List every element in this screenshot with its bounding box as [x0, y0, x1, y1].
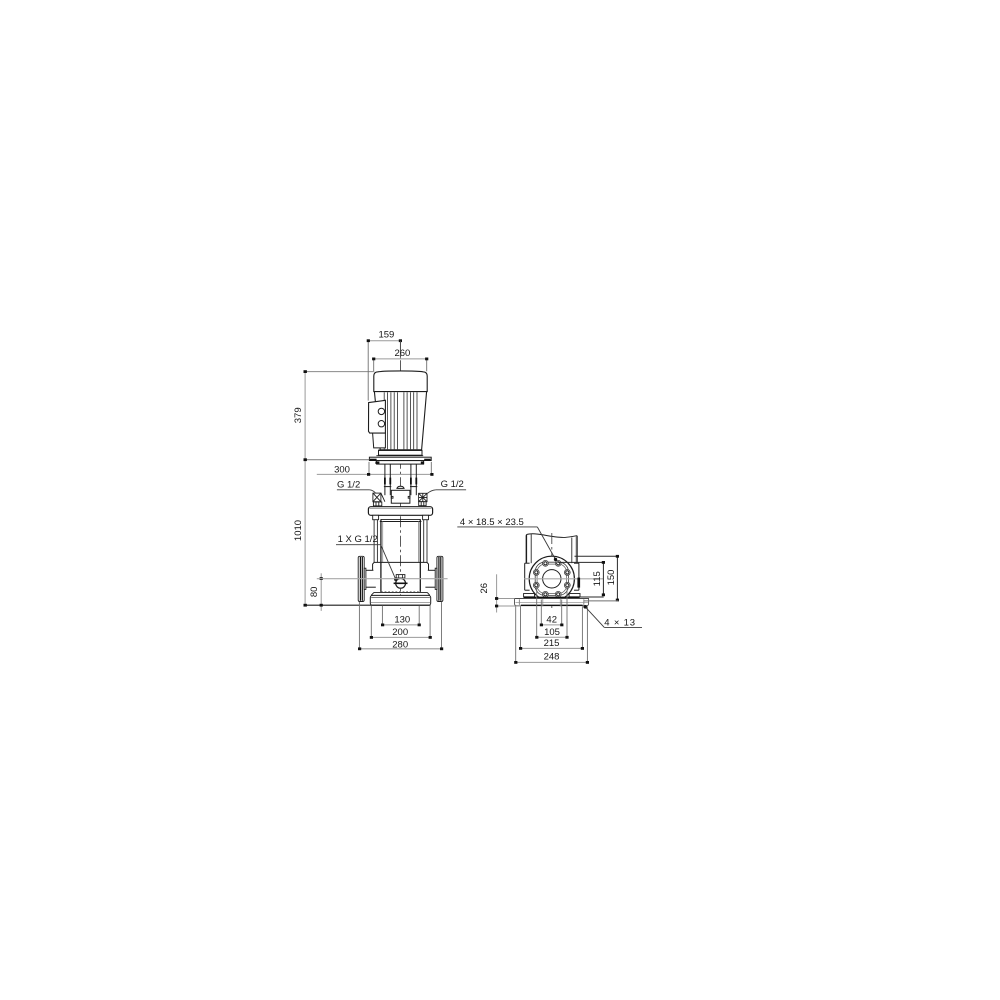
svg-text:4 × 18.5 × 23.5: 4 × 18.5 × 23.5	[460, 517, 524, 528]
svg-text:159: 159	[378, 330, 394, 341]
svg-text:105: 105	[544, 627, 560, 638]
svg-text:379: 379	[293, 407, 304, 423]
svg-text:248: 248	[544, 651, 560, 662]
svg-text:1 X G 1/2: 1 X G 1/2	[338, 534, 378, 545]
svg-text:80: 80	[309, 587, 320, 598]
svg-text:200: 200	[392, 627, 408, 638]
svg-text:150: 150	[606, 570, 617, 586]
svg-text:280: 280	[392, 640, 408, 651]
svg-text:26: 26	[479, 583, 490, 594]
svg-text:130: 130	[394, 615, 410, 626]
svg-text:215: 215	[544, 638, 560, 649]
svg-text:G 1/2: G 1/2	[337, 480, 360, 491]
svg-text:42: 42	[546, 615, 557, 626]
svg-text:260: 260	[394, 348, 410, 359]
svg-text:4 × 13: 4 × 13	[604, 618, 635, 629]
svg-text:1010: 1010	[293, 520, 304, 541]
svg-text:300: 300	[334, 464, 350, 475]
svg-text:115: 115	[592, 571, 603, 586]
svg-text:G 1/2: G 1/2	[441, 479, 464, 490]
